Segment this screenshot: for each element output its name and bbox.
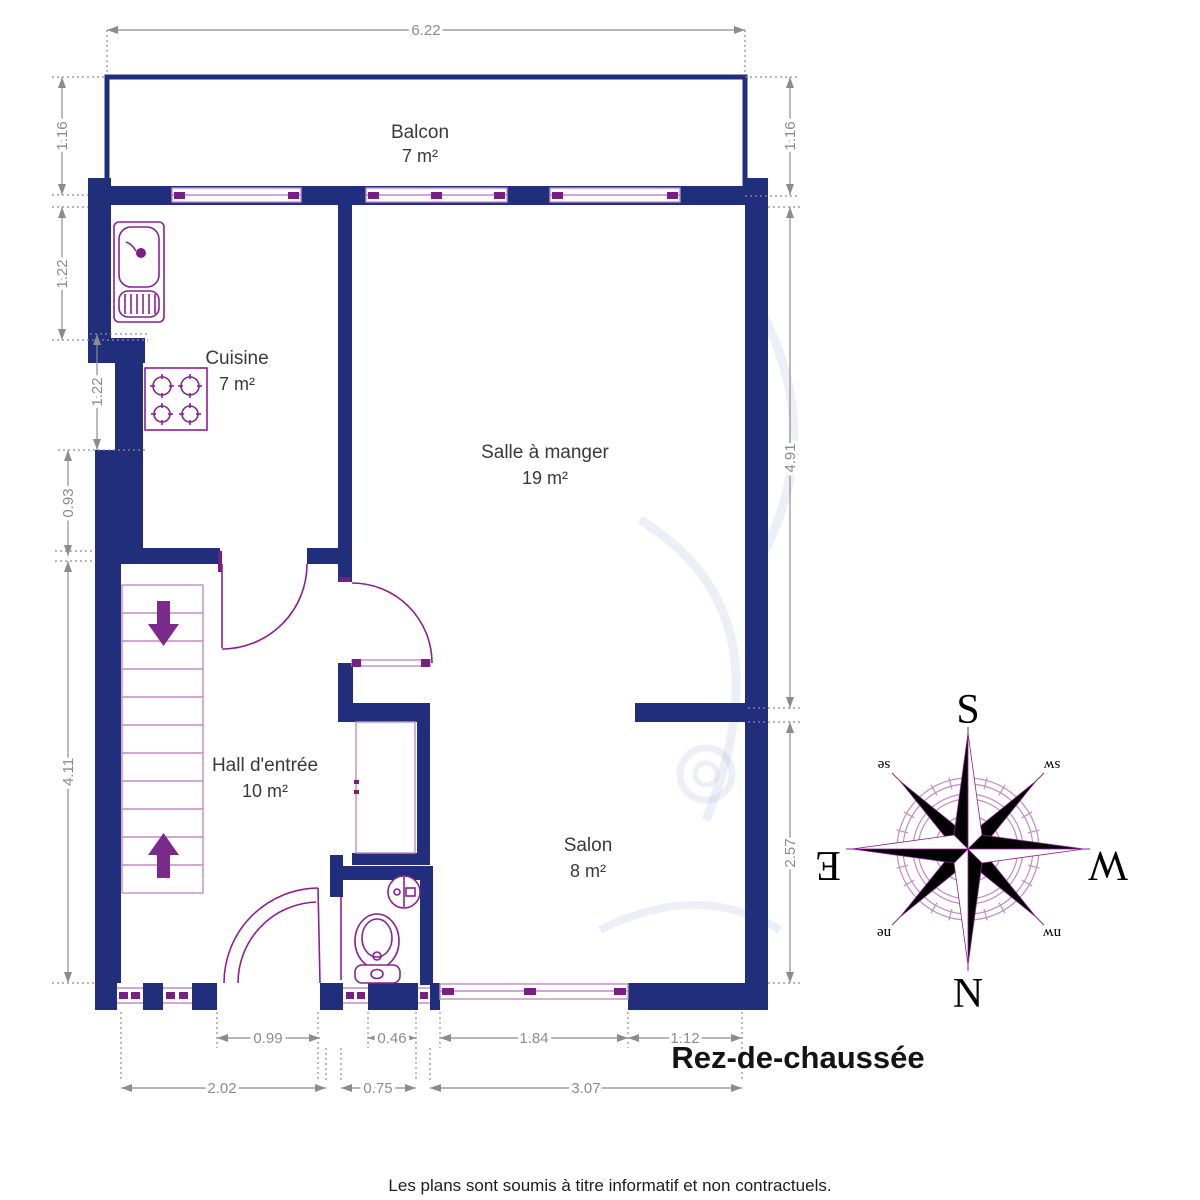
closet-top-wall: [338, 703, 430, 722]
svg-text:1.84: 1.84: [519, 1030, 548, 1047]
footer-note: Les plans sont soumis à titre informatif…: [388, 1176, 831, 1195]
window-icon: [366, 188, 507, 202]
washbasin-icon: [388, 876, 420, 908]
arrow-up-icon: [148, 833, 179, 878]
wall-right: [745, 205, 768, 983]
compass-sw: sw: [1043, 757, 1060, 773]
room-label-cuisine: Cuisine: [205, 348, 268, 369]
compass-w: W: [1088, 842, 1128, 888]
toilet-icon: [355, 914, 400, 983]
dimension-bottom-202: 2.02: [121, 1080, 326, 1097]
svg-text:4.91: 4.91: [782, 443, 799, 472]
wall-left-sink: [88, 186, 111, 341]
svg-text:2.02: 2.02: [207, 1080, 236, 1097]
dimension-top: 6.22: [107, 22, 745, 39]
room-area-cuisine: 7 m²: [219, 374, 255, 394]
window-icon: [550, 188, 680, 202]
svg-text:1.16: 1.16: [54, 121, 71, 150]
dimension-bottom-075: 0.75: [341, 1080, 416, 1097]
arrow-down-icon: [148, 601, 179, 646]
room-area-hall: 10 m²: [242, 781, 288, 801]
wc-top-wall: [330, 866, 433, 880]
sink-icon: [114, 222, 164, 322]
floor-plan-canvas: Balcon 7 m² Cuisine 7 m² Salle à manger …: [0, 0, 1200, 1200]
wall-stub-salon: [635, 703, 745, 722]
dimension-right-116: 1.16: [782, 77, 799, 195]
dimension-bottom-046: 0.46: [368, 1030, 416, 1047]
stairs: [122, 585, 203, 893]
door-entrance: [224, 888, 320, 983]
window-icon-small: [117, 988, 143, 1003]
dimension-bottom-307: 3.07: [430, 1080, 742, 1097]
wall-divider: [338, 205, 352, 582]
window-icon-small: [418, 988, 430, 1003]
dimension-left-122a: 1.22: [54, 207, 71, 340]
page-title: Rez-de-chaussée: [671, 1040, 924, 1075]
dimension-right-257: 2.57: [782, 722, 799, 983]
svg-text:0.93: 0.93: [60, 488, 77, 517]
room-label-salon: Salon: [564, 835, 613, 856]
svg-text:0.46: 0.46: [377, 1030, 406, 1047]
room-area-salon: 8 m²: [570, 861, 606, 881]
floor-plan-page: Balcon 7 m² Cuisine 7 m² Salle à manger …: [0, 0, 1200, 1200]
room-label-hall: Hall d'entrée: [212, 755, 318, 776]
door-kitchen-hall: [218, 551, 307, 649]
compass-e: E: [815, 842, 841, 888]
compass-nw: nw: [1043, 925, 1062, 941]
closet-bottom-wall: [352, 853, 430, 865]
window-icon: [172, 188, 301, 202]
window-icon-salon: [440, 984, 628, 999]
window-icon-small: [343, 988, 368, 1003]
svg-text:3.07: 3.07: [571, 1080, 600, 1097]
compass-s: S: [956, 687, 979, 733]
dimension-bottom-099: 0.99: [217, 1030, 320, 1047]
compass-ne: ne: [877, 925, 892, 941]
closet-door: [354, 722, 415, 853]
svg-text:0.75: 0.75: [363, 1080, 392, 1097]
wall-left-stove: [115, 360, 143, 455]
room-area-salle-a-manger: 19 m²: [522, 468, 568, 488]
svg-text:6.22: 6.22: [411, 22, 440, 39]
compass-se: se: [877, 757, 890, 773]
stove-icon: [145, 368, 207, 430]
svg-text:2.57: 2.57: [782, 838, 799, 867]
dimension-bottom-184: 1.84: [440, 1030, 628, 1047]
door-hall-dining: [352, 583, 432, 667]
room-labels: Balcon 7 m² Cuisine 7 m² Salle à manger …: [205, 122, 612, 881]
wall-left-hall: [95, 564, 121, 983]
room-area-balcon: 7 m²: [402, 146, 438, 166]
wc-right-wall: [420, 866, 433, 985]
compass-rose: S N E W se sw ne nw: [815, 687, 1128, 1017]
svg-text:1.22: 1.22: [89, 377, 106, 406]
svg-text:1.22: 1.22: [54, 259, 71, 288]
svg-text:4.11: 4.11: [60, 758, 77, 786]
dimension-left-411: 4.11: [60, 561, 77, 983]
dimension-right-491: 4.91: [782, 207, 799, 708]
room-label-salle-a-manger: Salle à manger: [481, 442, 609, 463]
room-label-balcon: Balcon: [391, 122, 449, 143]
svg-text:1.16: 1.16: [782, 121, 799, 150]
compass-n: N: [953, 971, 983, 1017]
closet-right-wall: [417, 722, 430, 853]
dimension-left-116: 1.16: [54, 77, 71, 195]
svg-text:0.99: 0.99: [253, 1030, 282, 1047]
window-icon-small: [163, 988, 192, 1003]
dimension-left-093: 0.93: [60, 450, 77, 556]
wall-kitchen-hall: [95, 548, 220, 564]
